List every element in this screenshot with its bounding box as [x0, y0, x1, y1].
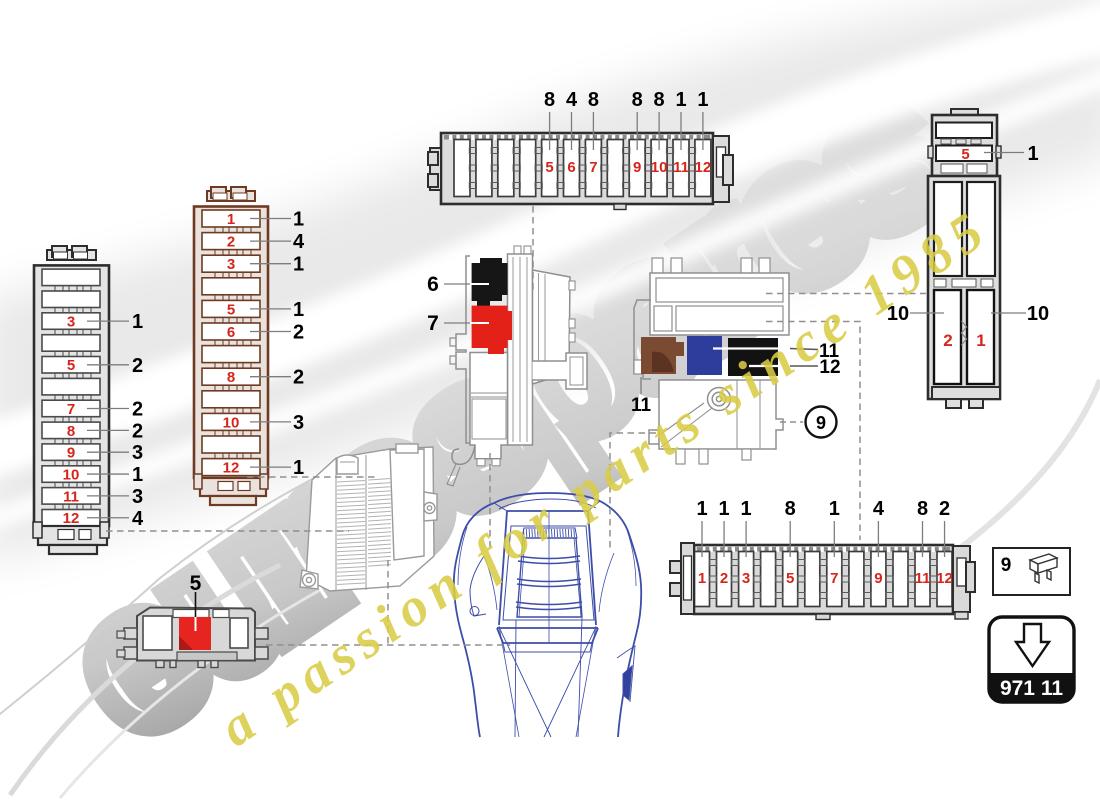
svg-text:6: 6: [227, 324, 235, 341]
svg-text:8: 8: [654, 89, 665, 111]
svg-text:6: 6: [567, 159, 575, 176]
svg-text:11: 11: [915, 570, 931, 587]
svg-text:2: 2: [227, 234, 235, 251]
svg-text:8: 8: [227, 369, 235, 386]
svg-text:10: 10: [63, 466, 80, 483]
svg-text:1: 1: [293, 254, 304, 276]
svg-text:2: 2: [939, 498, 950, 520]
svg-text:12: 12: [223, 460, 240, 477]
svg-text:4: 4: [132, 508, 144, 530]
svg-text:8: 8: [632, 89, 643, 111]
svg-text:2: 2: [132, 420, 143, 442]
svg-text:1: 1: [697, 89, 708, 111]
svg-text:7: 7: [830, 570, 838, 587]
svg-text:1: 1: [227, 211, 235, 228]
svg-text:11: 11: [63, 488, 79, 505]
svg-text:3: 3: [227, 256, 235, 273]
svg-text:1: 1: [976, 331, 985, 350]
svg-text:1: 1: [698, 570, 706, 587]
svg-text:9: 9: [1001, 555, 1012, 576]
svg-text:5: 5: [545, 159, 553, 176]
svg-text:11: 11: [673, 159, 689, 176]
svg-text:1: 1: [1027, 143, 1038, 165]
svg-text:2: 2: [132, 355, 143, 377]
svg-text:9: 9: [67, 445, 75, 462]
svg-text:2: 2: [720, 570, 728, 587]
svg-text:7: 7: [427, 312, 439, 335]
svg-text:1: 1: [696, 498, 707, 520]
svg-text:2: 2: [132, 399, 143, 421]
svg-text:9: 9: [816, 413, 826, 433]
svg-text:1: 1: [675, 89, 686, 111]
svg-text:7: 7: [589, 159, 597, 176]
svg-text:2: 2: [293, 322, 304, 344]
svg-text:10: 10: [223, 414, 240, 431]
svg-text:12: 12: [695, 159, 712, 176]
svg-text:5: 5: [786, 570, 794, 587]
svg-text:8: 8: [588, 89, 599, 111]
svg-text:9: 9: [874, 570, 882, 587]
svg-text:10: 10: [1027, 303, 1049, 325]
svg-text:1: 1: [132, 464, 143, 486]
svg-text:3: 3: [132, 442, 143, 464]
svg-text:1: 1: [718, 498, 729, 520]
svg-text:5: 5: [227, 301, 235, 318]
svg-text:1: 1: [829, 498, 840, 520]
svg-text:5: 5: [67, 357, 75, 374]
svg-text:1: 1: [132, 311, 143, 333]
svg-text:10: 10: [651, 159, 668, 176]
svg-text:3: 3: [132, 486, 143, 508]
svg-text:4: 4: [873, 498, 885, 520]
svg-text:971 11: 971 11: [1000, 677, 1063, 700]
svg-text:3: 3: [67, 314, 75, 331]
svg-text:3: 3: [742, 570, 750, 587]
svg-text:1: 1: [293, 299, 304, 321]
svg-text:6: 6: [427, 273, 439, 296]
svg-text:4: 4: [566, 89, 578, 111]
svg-text:5: 5: [961, 146, 969, 163]
svg-text:5: 5: [190, 572, 202, 595]
svg-text:2: 2: [293, 367, 304, 389]
svg-text:3: 3: [293, 412, 304, 434]
svg-text:1: 1: [293, 209, 304, 231]
svg-text:9: 9: [633, 159, 641, 176]
svg-text:8: 8: [785, 498, 796, 520]
svg-text:12: 12: [936, 570, 953, 587]
svg-text:4: 4: [293, 231, 305, 253]
svg-text:1: 1: [293, 457, 304, 479]
svg-text:8: 8: [917, 498, 928, 520]
svg-text:8: 8: [67, 423, 75, 440]
svg-text:1: 1: [741, 498, 752, 520]
svg-text:7: 7: [67, 401, 75, 418]
svg-text:12: 12: [63, 510, 80, 527]
svg-text:8: 8: [544, 89, 555, 111]
svg-text:2: 2: [943, 331, 952, 350]
